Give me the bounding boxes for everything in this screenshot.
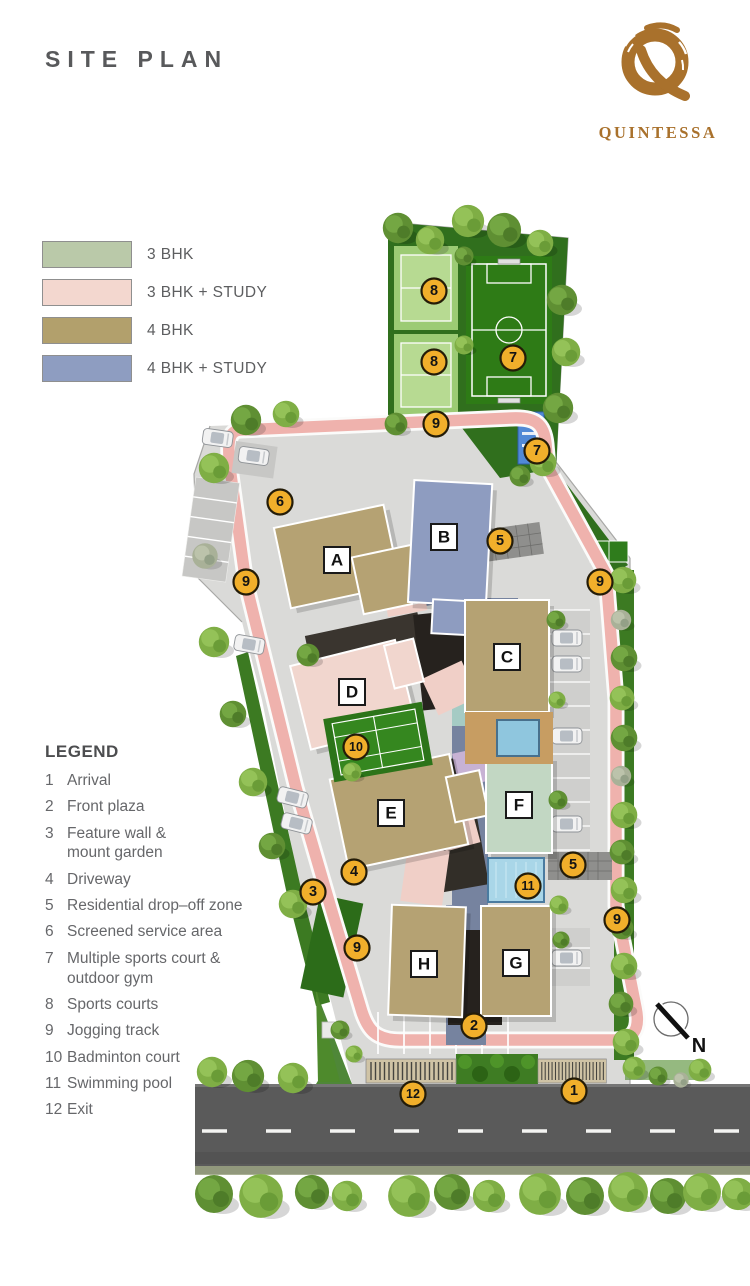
marker-6: 6 [268,490,293,515]
compass: N [654,1002,706,1057]
svg-text:5: 5 [496,533,504,549]
unit-legend-row: 3 BHK [42,241,267,268]
unit-label: 4 BHK [147,322,194,340]
building-label-G: G [503,950,529,976]
legend-item: 8Sports courts [45,995,280,1015]
marker-7a: 7 [501,346,526,371]
svg-text:1: 1 [570,1083,578,1099]
exit-gate [366,1059,456,1083]
tennis-court-lower [394,334,458,416]
svg-text:9: 9 [353,940,361,956]
legend-item: 1Arrival [45,771,280,791]
brand-name: QUINTESSA [583,123,733,143]
svg-text:8: 8 [430,283,438,299]
marker-8b: 8 [422,350,447,375]
building-label-D: D [339,679,365,705]
legend-item: 2Front plaza [45,797,280,817]
svg-text:2: 2 [470,1018,478,1034]
legend-title: LEGEND [45,742,280,762]
svg-text:D: D [346,683,358,702]
svg-text:F: F [514,796,524,815]
marker-1: 1 [562,1079,587,1104]
svg-text:6: 6 [276,494,284,510]
building-label-C: C [494,644,520,670]
car-icon [552,950,582,966]
upper-pool [497,720,539,756]
marker-9c: 9 [588,570,613,595]
legend-item: 10Badminton court [45,1048,280,1068]
marker-10: 10 [344,735,369,760]
svg-text:3: 3 [309,884,317,900]
svg-text:9: 9 [432,416,440,432]
svg-text:9: 9 [613,912,621,928]
swatch-3bhk-study [42,279,132,306]
unit-type-legend: 3 BHK 3 BHK + STUDY 4 BHK 4 BHK + STUDY [42,241,267,393]
building-label-H: H [411,951,437,977]
unit-label: 3 BHK + STUDY [147,284,267,302]
car-icon [552,656,582,672]
football-field [466,256,552,404]
svg-text:A: A [331,551,343,570]
svg-text:G: G [509,954,522,973]
marker-9a: 9 [424,412,449,437]
marker-9d: 9 [345,936,370,961]
svg-text:7: 7 [509,350,517,366]
svg-text:E: E [385,804,396,823]
legend-item: 5Residential drop–off zone [45,896,280,916]
building-label-A: A [324,547,350,573]
marker-5a: 5 [488,529,513,554]
legend-item: 4Driveway [45,870,280,890]
svg-text:B: B [438,528,450,547]
marker-8a: 8 [422,279,447,304]
building-label-F: F [506,792,532,818]
marker-11: 11 [516,874,541,899]
marker-12: 12 [401,1082,426,1107]
brand-logo: QUINTESSA [583,16,733,142]
swatch-3bhk [42,241,132,268]
marker-9e: 9 [605,908,630,933]
svg-text:10: 10 [349,740,363,754]
building-label-B: B [431,524,457,550]
marker-3: 3 [301,880,326,905]
legend-item: 11Swimming pool [45,1074,280,1094]
legend-item: 7Multiple sports court &outdoor gym [45,949,280,989]
unit-legend-row: 3 BHK + STUDY [42,279,267,306]
swatch-4bhk [42,317,132,344]
svg-text:4: 4 [350,864,358,880]
unit-label: 4 BHK + STUDY [147,360,267,378]
svg-text:9: 9 [596,574,604,590]
marker-5b: 5 [561,853,586,878]
legend-item: 6Screened service area [45,922,280,942]
compass-north-label: N [692,1035,706,1057]
legend-item: 12Exit [45,1100,280,1120]
unit-legend-row: 4 BHK [42,317,267,344]
unit-legend-row: 4 BHK + STUDY [42,355,267,382]
legend-item: 3Feature wall &mount garden [45,824,280,864]
marker-4: 4 [342,860,367,885]
svg-text:12: 12 [406,1087,420,1101]
svg-text:9: 9 [242,574,250,590]
marker-9b: 9 [234,570,259,595]
svg-text:C: C [501,648,513,667]
page-title: SITE PLAN [45,46,228,73]
swatch-4bhk-study [42,355,132,382]
marker-7b: 7 [525,439,550,464]
svg-text:5: 5 [569,857,577,873]
car-icon [552,728,582,744]
car-icon [552,630,582,646]
legend: LEGEND 1Arrival 2Front plaza 3Feature wa… [45,742,280,1127]
unit-label: 3 BHK [147,246,194,264]
legend-item: 9Jogging track [45,1021,280,1041]
svg-text:11: 11 [521,879,534,893]
svg-text:8: 8 [430,354,438,370]
building-label-E: E [378,800,404,826]
marker-2: 2 [462,1014,487,1039]
svg-text:H: H [418,955,430,974]
quintessa-logo-icon [583,16,733,116]
svg-text:7: 7 [533,443,541,459]
